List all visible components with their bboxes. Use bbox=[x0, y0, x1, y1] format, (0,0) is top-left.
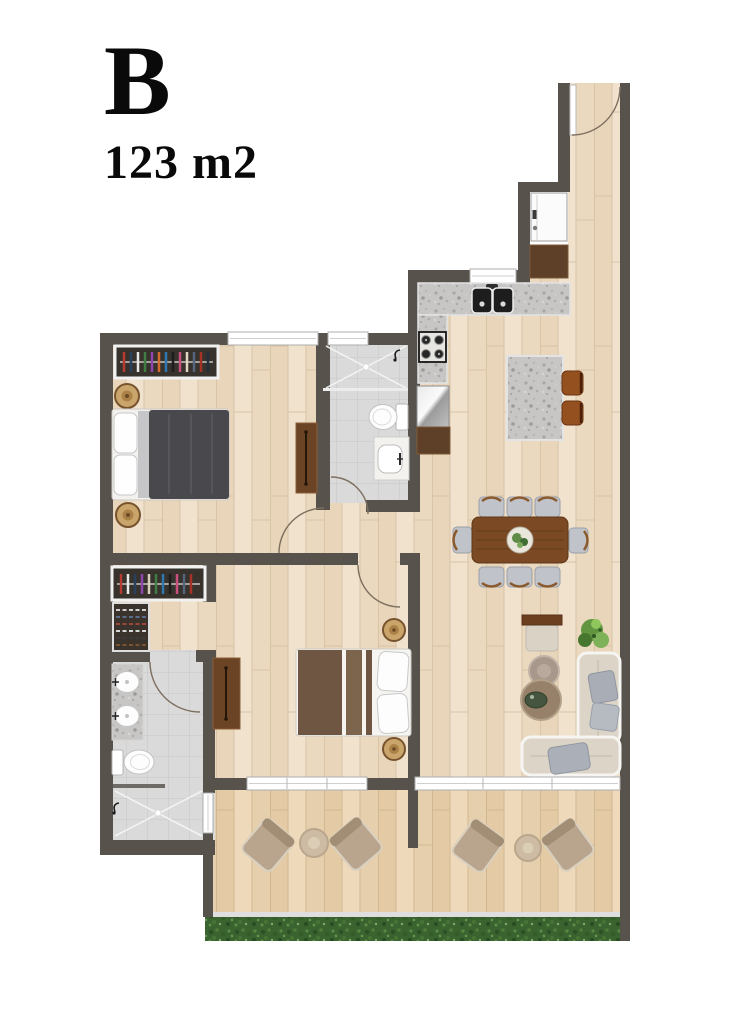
rug-icon bbox=[383, 738, 405, 760]
pillow-icon bbox=[114, 455, 137, 495]
dresser-icon bbox=[213, 658, 240, 729]
window-icon-kitchen bbox=[470, 269, 516, 283]
wall-bedroom2-bottom-a bbox=[203, 778, 248, 790]
double-bed-icon bbox=[296, 649, 411, 736]
floor-plan-page: B 123 m2 bbox=[0, 0, 734, 1024]
rug-icon bbox=[116, 503, 140, 527]
hedge-icon bbox=[205, 917, 622, 941]
dining-chair-icon bbox=[453, 527, 472, 553]
bar-stool-icon bbox=[562, 401, 583, 425]
dining-chair-icon bbox=[535, 567, 560, 587]
pillow-icon bbox=[377, 693, 410, 734]
double-vanity-icon bbox=[112, 664, 143, 740]
dining-chair-icon bbox=[535, 497, 560, 517]
toilet-icon bbox=[369, 404, 408, 430]
window-icon-bathroom1 bbox=[328, 332, 368, 345]
dining-chair-icon bbox=[569, 528, 588, 553]
toilet-icon bbox=[112, 750, 154, 775]
pillow-icon bbox=[547, 742, 591, 775]
wardrobe-icon bbox=[115, 346, 218, 378]
hall-cabinet-icon bbox=[530, 245, 568, 278]
dining-chair-icon bbox=[479, 567, 504, 587]
wardrobe-icon bbox=[112, 567, 205, 600]
pillow-icon bbox=[114, 413, 137, 453]
rug-icon bbox=[383, 619, 405, 641]
centerpiece-plant-icon bbox=[507, 527, 533, 553]
pillow-icon bbox=[589, 702, 619, 732]
side-table-icon bbox=[300, 829, 328, 857]
fridge-icon bbox=[417, 386, 449, 427]
dresser-icon bbox=[296, 423, 317, 493]
desk-icon bbox=[522, 615, 562, 651]
pillow-icon bbox=[377, 651, 410, 692]
wall-bathroom2-bottom bbox=[100, 840, 215, 855]
floor-plan-svg bbox=[0, 0, 734, 1024]
shoe-rack-icon bbox=[113, 603, 149, 651]
kitchen-island-icon bbox=[507, 356, 563, 440]
side-table-icon bbox=[515, 835, 541, 861]
coffee-table-icon bbox=[521, 680, 561, 720]
dining-chair-icon bbox=[507, 497, 532, 517]
wall-terrace-stub bbox=[408, 790, 418, 848]
wall-bedroom-divider bbox=[100, 553, 358, 565]
washing-machine-icon bbox=[531, 193, 567, 241]
wall-bathroom1-bottom bbox=[366, 500, 420, 512]
dining-chair-icon bbox=[479, 497, 504, 517]
dining-chair-icon bbox=[507, 567, 532, 587]
wall-corridor-left bbox=[558, 83, 570, 192]
terrace-edge bbox=[203, 912, 629, 917]
wall-bedroom2-bottom-b bbox=[367, 778, 408, 790]
washbasin-icon bbox=[374, 437, 409, 480]
pillow-icon bbox=[588, 670, 619, 704]
wall-niche-back bbox=[518, 182, 530, 283]
double-bed-icon bbox=[112, 409, 229, 500]
window-icon-bedroom1 bbox=[228, 332, 318, 345]
double-sink-icon bbox=[472, 284, 513, 313]
wall-right bbox=[620, 83, 630, 941]
window-icon-living-terrace bbox=[415, 777, 620, 790]
entry-door-leaf bbox=[570, 85, 576, 135]
window-icon-shower-terrace bbox=[203, 793, 213, 833]
bar-stool-icon bbox=[562, 371, 583, 395]
rug-icon bbox=[115, 384, 139, 408]
stove-icon bbox=[419, 332, 446, 362]
wall-bedroom1-right bbox=[316, 345, 330, 510]
kitchen-cabinet-icon bbox=[417, 427, 450, 454]
window-icon-bedroom2-terrace bbox=[247, 777, 367, 790]
